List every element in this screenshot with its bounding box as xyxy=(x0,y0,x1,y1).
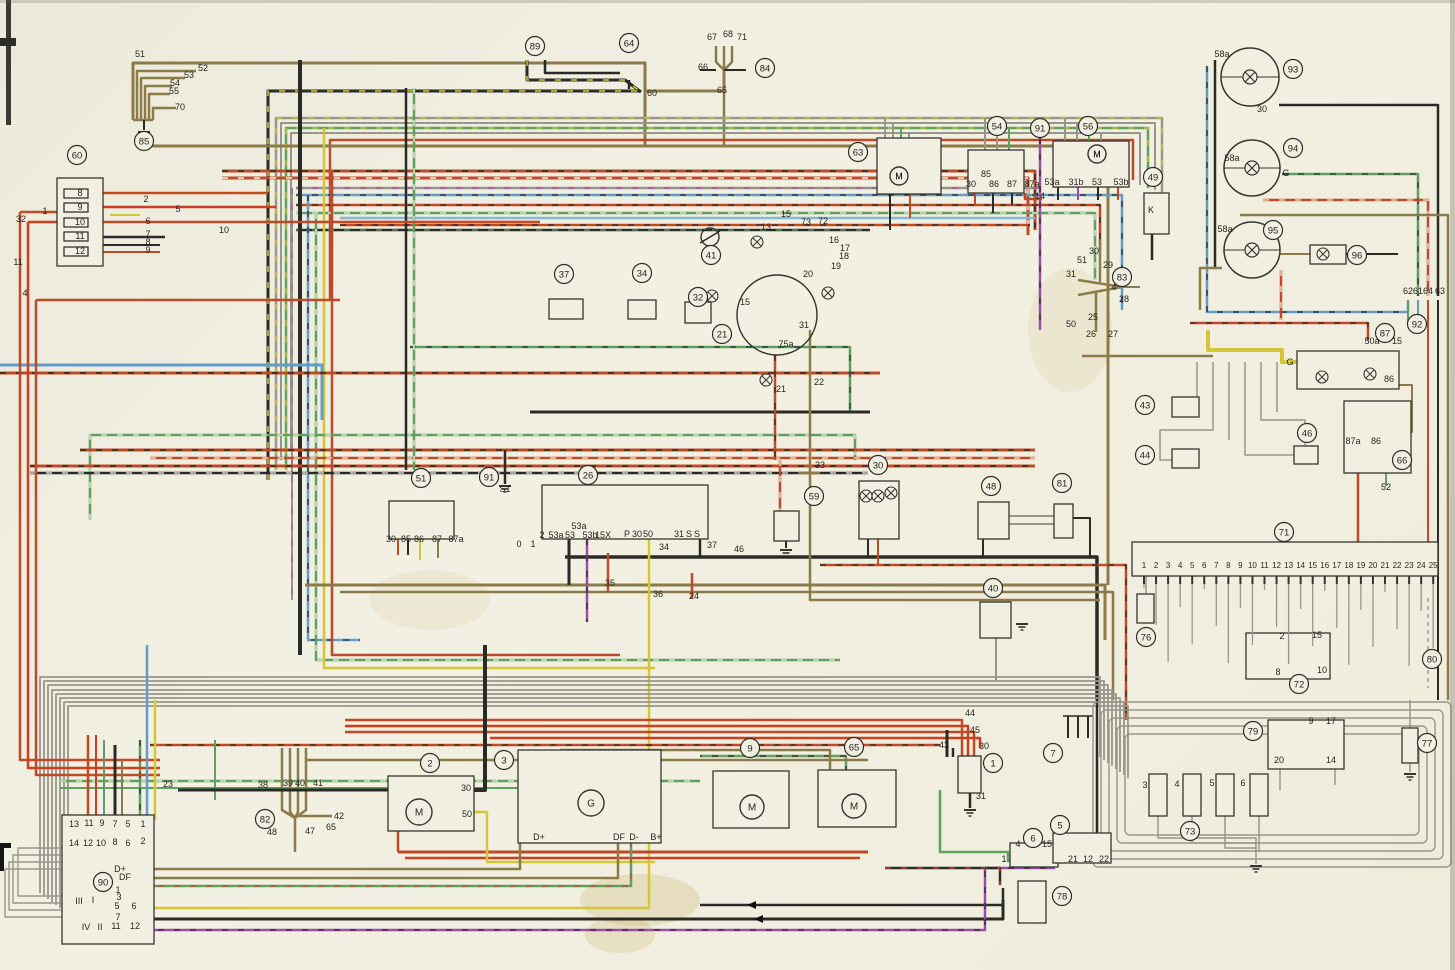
wire-label: 9 xyxy=(77,202,82,212)
wire-label: 71 xyxy=(737,32,747,42)
wire-label: D+ xyxy=(533,832,545,842)
wire-label: 25 xyxy=(1088,312,1098,322)
wire-label: 31 xyxy=(799,320,809,330)
wire-label: 20 xyxy=(1274,755,1284,765)
cluster-pin-number: 6 xyxy=(1202,561,1207,570)
wire-label: X xyxy=(605,530,611,540)
callout-number: 93 xyxy=(1288,64,1299,75)
wire-label: 30 xyxy=(461,783,471,793)
cluster-pin-number: 9 xyxy=(1238,561,1243,570)
callout-number: 41 xyxy=(706,250,717,261)
wire-label: 19 xyxy=(831,261,841,271)
callout-number: 78 xyxy=(1057,891,1068,902)
callout-number: 60 xyxy=(72,150,83,161)
wire-label: 51 xyxy=(135,49,145,59)
wire-label: 68 xyxy=(723,29,733,39)
component-box xyxy=(1183,774,1201,816)
wire xyxy=(142,842,520,869)
wire-label: 36 xyxy=(653,589,663,599)
callout-number: 34 xyxy=(637,268,648,279)
component-box xyxy=(980,602,1011,638)
wire-label: 6 xyxy=(1240,778,1245,788)
cluster-pin-number: 20 xyxy=(1368,561,1377,570)
component-box xyxy=(1132,542,1438,576)
wire-label: 66 xyxy=(698,62,708,72)
callout-number: 48 xyxy=(986,481,997,492)
callout-number: 40 xyxy=(988,583,999,594)
wire-label: 11 xyxy=(75,231,84,241)
wire-label: 46 xyxy=(734,544,744,554)
wire-label: 15 xyxy=(1392,336,1402,346)
wire-label: 2 xyxy=(1279,631,1284,641)
wire-label: 50 xyxy=(1066,319,1076,329)
cluster-pin-number: 18 xyxy=(1344,561,1353,570)
wire-label: 50 xyxy=(643,529,653,539)
callout-number: 72 xyxy=(1294,679,1305,690)
callout-number: 76 xyxy=(1141,632,1152,643)
wire-label: 55 xyxy=(169,86,179,96)
cluster-pin-number: 7 xyxy=(1214,561,1219,570)
wire-label: 15 xyxy=(740,297,750,307)
cluster-pin-number: 8 xyxy=(1226,561,1231,570)
wire-label: 9 xyxy=(1308,716,1313,726)
scan-artifact xyxy=(6,0,11,125)
callout-number: 9 xyxy=(747,743,752,754)
callout-number: 80 xyxy=(1427,654,1438,665)
wire-label: 24 xyxy=(689,591,699,601)
callout-number: 73 xyxy=(1185,826,1196,837)
wire-label: 4 xyxy=(1174,779,1179,789)
wire-label: G xyxy=(1286,357,1293,367)
callout-number: 82 xyxy=(260,814,271,825)
wire xyxy=(142,842,618,878)
wire-label: 12 xyxy=(1083,854,1093,864)
motor-letter: G xyxy=(587,799,595,810)
callout-number: 30 xyxy=(873,460,884,471)
wire-stripe xyxy=(820,565,1126,720)
wire-label: 85 xyxy=(401,534,411,544)
wire xyxy=(1072,518,1090,557)
wire-label: 18 xyxy=(839,251,849,261)
wire-label: 13 xyxy=(69,819,79,829)
cluster-pin-number: 11 xyxy=(1260,561,1269,570)
wire-label: 33 xyxy=(815,460,825,470)
component-box xyxy=(1018,881,1046,923)
callout-number: 51 xyxy=(416,473,427,484)
wire-label: 5 xyxy=(114,901,119,911)
wire-label: 87 xyxy=(1007,179,1017,189)
wire xyxy=(142,900,1003,919)
component-box xyxy=(1172,449,1199,468)
wire-label: 86 xyxy=(414,534,424,544)
cluster-pin-number: 1 xyxy=(1142,561,1147,570)
wire-label: 67 xyxy=(707,32,717,42)
callout-number: 87 xyxy=(1380,328,1391,339)
wire-label: 28 xyxy=(1119,294,1129,304)
wire-label: 53 xyxy=(565,530,575,540)
cluster-pin-number: 24 xyxy=(1417,561,1426,570)
wire xyxy=(565,557,1097,700)
wire-label: 8 xyxy=(1275,667,1280,677)
scan-artifact xyxy=(0,0,1455,3)
wire-label: 10 xyxy=(219,225,229,235)
callout-number: 56 xyxy=(1083,121,1094,132)
component-box xyxy=(549,299,583,319)
cluster-pin-number: 17 xyxy=(1332,561,1341,570)
component-box xyxy=(64,203,88,212)
wire-label: 31 xyxy=(674,529,684,539)
wire-label: 15 xyxy=(595,530,605,540)
wire-label: 30 xyxy=(386,534,396,544)
wire-label: 12 xyxy=(75,246,85,256)
callout-number: 32 xyxy=(693,292,704,303)
switch-outline xyxy=(737,275,817,355)
wire-label: 1 xyxy=(42,206,47,216)
wire-label: 51 xyxy=(1077,255,1087,265)
wire-label: 11 xyxy=(84,818,93,828)
component-box xyxy=(64,189,88,198)
callout-number: 37 xyxy=(559,269,570,280)
paper-stain xyxy=(585,917,655,953)
motor-letter: M xyxy=(850,802,858,813)
wire-label: 4 xyxy=(1111,282,1116,292)
callout-number: 3 xyxy=(501,755,506,766)
component-box xyxy=(1216,774,1234,816)
wire-label: 4 xyxy=(22,288,27,298)
wire-label: III xyxy=(75,896,83,906)
wire-stripe xyxy=(90,435,855,520)
component-box xyxy=(877,138,941,194)
component-box xyxy=(1054,504,1073,538)
wire-label: 6 xyxy=(131,901,136,911)
callout-number: 91 xyxy=(1035,123,1046,134)
component-box xyxy=(774,511,799,541)
callout-number: 44 xyxy=(1140,450,1151,461)
wire-label: 48 xyxy=(267,827,277,837)
wiring-diagram-svg: MMMMMG1234567891011121314151617181920212… xyxy=(0,0,1455,970)
wire-label: 86 xyxy=(1371,436,1381,446)
wire-stripe xyxy=(142,842,631,886)
wire-label: 37 xyxy=(707,540,717,550)
wire-label: S1 xyxy=(499,484,510,494)
wire-label: 60 xyxy=(647,88,657,98)
component-box xyxy=(1137,594,1154,623)
wire-label: 0 xyxy=(516,539,521,549)
wire-label: 20 xyxy=(803,269,813,279)
wire-label: K xyxy=(1148,205,1154,215)
wire-label: 87a xyxy=(448,534,463,544)
wiring-diagram-page: Porsche 914 electrical wiring diagram (s… xyxy=(0,0,1455,970)
wire-label: 10 xyxy=(75,217,85,227)
callout-number: 92 xyxy=(1412,319,1423,330)
callout-number: 90 xyxy=(98,877,109,888)
wire xyxy=(1190,323,1368,340)
wire-label: 65 xyxy=(717,85,727,95)
wire-label: 52 xyxy=(1381,482,1391,492)
cluster-pin-number: 23 xyxy=(1405,561,1414,570)
callout-number: 79 xyxy=(1248,726,1259,737)
wire-label: 50 xyxy=(462,809,472,819)
wire-label: 14 xyxy=(69,838,79,848)
wire-label: 2 xyxy=(143,194,148,204)
wire-label: 15 xyxy=(1042,839,1052,849)
callout-number: 49 xyxy=(1148,172,1159,183)
wire-label: 15 xyxy=(781,209,791,219)
wire xyxy=(36,300,160,775)
component-box xyxy=(978,502,1009,539)
wire xyxy=(1160,382,1213,460)
wire xyxy=(1200,268,1222,310)
cluster-pin-number: 21 xyxy=(1381,561,1390,570)
wire-label: 26 xyxy=(1086,329,1096,339)
wire-stripe xyxy=(1190,323,1368,340)
wire-label: 5 xyxy=(125,819,130,829)
wire-label: 30 xyxy=(632,529,642,539)
wire-label: 9 xyxy=(99,818,104,828)
wire-label: 6 xyxy=(145,216,150,226)
wire-label: 31b xyxy=(1068,177,1083,187)
wire-label: 58a xyxy=(1217,224,1232,234)
wire xyxy=(142,842,631,886)
wire-label: 22 xyxy=(1099,854,1109,864)
wire-label: 12 xyxy=(83,838,93,848)
wire-label: 86 xyxy=(989,179,999,189)
wire-label: 75a xyxy=(778,339,793,349)
motor-letter: M xyxy=(748,803,756,814)
wire-label: 16 xyxy=(829,235,839,245)
wire xyxy=(700,888,1003,905)
wire-label: 11 xyxy=(111,921,120,931)
wire-label: 87 xyxy=(432,534,442,544)
wire-label: 70 xyxy=(175,102,185,112)
wire-label: DF xyxy=(119,872,131,882)
wire-label: 35 xyxy=(605,578,615,588)
wire-label: 43 xyxy=(939,740,949,750)
callout-number: 6 xyxy=(1030,833,1035,844)
callout-number: 5 xyxy=(1057,820,1062,831)
wire-label: M xyxy=(895,171,903,181)
wire-label: 86 xyxy=(1384,374,1394,384)
component-box xyxy=(958,756,981,793)
wire-label: 50a xyxy=(1364,336,1379,346)
wire-label: 4 xyxy=(1015,839,1020,849)
wire-label: 7 xyxy=(112,819,117,829)
scan-artifact xyxy=(0,843,4,871)
cluster-pin-number: 2 xyxy=(1154,561,1159,570)
wire-label: 64 xyxy=(1423,286,1433,296)
wire xyxy=(700,231,720,243)
wire-label: 6 xyxy=(125,838,130,848)
wire-label: 52 xyxy=(198,63,208,73)
cluster-pin-number: 4 xyxy=(1178,561,1183,570)
wire-label: 72 xyxy=(818,216,828,226)
wire-label: 5 xyxy=(175,204,180,214)
callout-number: 84 xyxy=(760,63,771,74)
wire-label: 45 xyxy=(970,725,980,735)
cluster-pin-number: 10 xyxy=(1248,561,1257,570)
wire-label: B+ xyxy=(650,832,661,842)
cluster-pin-number: 5 xyxy=(1190,561,1195,570)
callout-number: 63 xyxy=(853,147,864,158)
wire-label: 53 xyxy=(1092,177,1102,187)
cluster-pin-number: 19 xyxy=(1356,561,1365,570)
cluster-pin-number: 3 xyxy=(1166,561,1171,570)
wire-label: II xyxy=(97,922,102,932)
flow-arrow-icon xyxy=(754,915,763,923)
callout-number: 46 xyxy=(1302,428,1313,439)
wire xyxy=(153,108,176,120)
wire-label: 32 xyxy=(16,214,26,224)
wire-label: 47 xyxy=(305,826,315,836)
wire-label: 39 xyxy=(283,778,293,788)
flow-arrow-icon xyxy=(747,901,756,909)
component-box xyxy=(1149,774,1167,816)
wire xyxy=(1208,330,1297,362)
wire-label: 31 xyxy=(976,791,986,801)
callout-number: 83 xyxy=(1117,272,1128,283)
wire xyxy=(1158,816,1256,852)
wire-stripe xyxy=(410,347,850,412)
cluster-pin-number: 14 xyxy=(1296,561,1305,570)
scan-artifact xyxy=(1450,0,1455,970)
wire-label: 22 xyxy=(814,377,824,387)
wire-label: 73 xyxy=(801,217,811,227)
wire-label: I xyxy=(92,895,95,905)
wire-label: 38 xyxy=(258,780,268,790)
wire-label: 13 xyxy=(761,222,771,232)
callout-number: 81 xyxy=(1057,478,1068,489)
wire-label: 1 xyxy=(530,539,535,549)
wire-label: 21 xyxy=(776,384,786,394)
callout-number: 21 xyxy=(717,329,728,340)
wire-label: 11 xyxy=(13,257,22,267)
wire-label: 53b xyxy=(1113,177,1128,187)
callout-number: 91 xyxy=(484,472,495,483)
callout-number: 85 xyxy=(139,136,150,147)
wire-label: 34 xyxy=(659,542,669,552)
callout-number: 89 xyxy=(530,41,541,52)
component-box xyxy=(1250,774,1268,816)
callout-number: 59 xyxy=(809,491,820,502)
paper-stain xyxy=(370,570,490,630)
wire-label: 8 xyxy=(77,188,82,198)
wire-label: 63 xyxy=(1435,286,1445,296)
cluster-pin-number: 16 xyxy=(1320,561,1329,570)
wire xyxy=(410,347,850,412)
wire-label: 62 xyxy=(1403,286,1413,296)
callout-number: 43 xyxy=(1140,400,1151,411)
wire-label: 53 xyxy=(184,70,194,80)
wire-label: G xyxy=(1282,168,1289,178)
wire-label: 2 xyxy=(140,836,145,846)
callout-number: 65 xyxy=(849,742,860,753)
wire-label: 2 xyxy=(539,530,544,540)
wire-label: 53a xyxy=(548,530,563,540)
wire-label: 58a xyxy=(1224,153,1239,163)
wire xyxy=(820,565,1126,720)
wire-label: 21 xyxy=(1068,854,1078,864)
wire xyxy=(1282,174,1418,296)
callout-number: 95 xyxy=(1268,225,1279,236)
wire-label: 44 xyxy=(965,708,975,718)
wire xyxy=(90,435,855,520)
wire-stripe xyxy=(1282,174,1418,296)
callout-number: 71 xyxy=(1279,527,1290,538)
wire-label: 29 xyxy=(1103,260,1113,270)
wire-label: 87a xyxy=(1024,179,1039,189)
wire-label: 40 xyxy=(295,778,305,788)
wire-label: 30 xyxy=(966,179,976,189)
wire-label: 30 xyxy=(1089,246,1099,256)
wire-label: 42 xyxy=(334,811,344,821)
wire-label: 87a xyxy=(1345,436,1360,446)
wire-label: 23 xyxy=(163,779,173,789)
wire-label: 17 xyxy=(1326,716,1336,726)
wire-label: 10 xyxy=(1317,665,1327,675)
motor-letter: M xyxy=(415,808,423,819)
wire-label: 10 xyxy=(96,838,106,848)
wire-label: 30 xyxy=(979,741,989,751)
wire-label: 14 xyxy=(1035,191,1045,201)
cluster-pin-number: 15 xyxy=(1308,561,1317,570)
callout-number: 54 xyxy=(992,121,1003,132)
wire xyxy=(1245,382,1294,455)
wire-label: 14 xyxy=(1326,755,1336,765)
wire-label: DF xyxy=(613,832,625,842)
wire xyxy=(490,738,980,748)
cluster-pin-number: 22 xyxy=(1393,561,1402,570)
callout-number: 77 xyxy=(1422,738,1433,749)
wire-label: 5 xyxy=(1209,778,1214,788)
wire-label: S xyxy=(694,529,700,539)
wire-label: 41 xyxy=(313,778,323,788)
wire-label: 1 xyxy=(1001,854,1006,864)
wire-label: 65 xyxy=(326,822,336,832)
wire-label: 1 xyxy=(140,819,145,829)
component-box xyxy=(1402,728,1418,763)
wire xyxy=(1192,816,1256,843)
wire-label: 15 xyxy=(1312,630,1322,640)
wire-label: 3 xyxy=(1142,780,1147,790)
wire-label: 30 xyxy=(1257,104,1267,114)
callout-number: 66 xyxy=(1397,455,1408,466)
wire-label: IV xyxy=(82,922,91,932)
wire xyxy=(885,868,1000,885)
wire-label: S xyxy=(686,529,692,539)
scan-artifact xyxy=(0,38,16,46)
wire-label: 31 xyxy=(1066,269,1076,279)
component-box xyxy=(1172,397,1199,417)
callout-number: 2 xyxy=(427,758,432,769)
wire-label: 27 xyxy=(1108,329,1118,339)
callout-number: 1 xyxy=(990,758,995,769)
wire-label: 85 xyxy=(981,169,991,179)
wire-stripe xyxy=(885,868,1000,885)
cluster-pin-number: 12 xyxy=(1272,561,1281,570)
wire-label: M xyxy=(1093,149,1101,159)
wire-label: 9 xyxy=(145,245,150,255)
cluster-pin-number: 25 xyxy=(1429,561,1438,570)
wire-label: 61 xyxy=(1413,286,1423,296)
component-box xyxy=(1294,446,1318,464)
wire-label: D- xyxy=(629,832,639,842)
callout-number: 7 xyxy=(1050,748,1055,759)
callout-number: 94 xyxy=(1288,143,1299,154)
wire-label: 8 xyxy=(112,837,117,847)
wire-label: 53a xyxy=(1044,177,1059,187)
callout-number: 96 xyxy=(1352,250,1363,261)
wire-label: P xyxy=(624,529,630,539)
